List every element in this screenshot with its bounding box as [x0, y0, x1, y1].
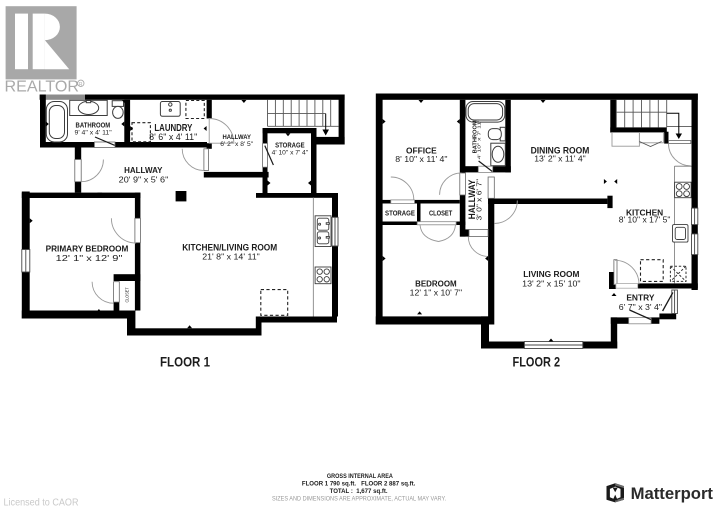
svg-text:PRIMARY BEDROOM: PRIMARY BEDROOM: [46, 244, 129, 254]
svg-text:8' 10" x 11' 4": 8' 10" x 11' 4": [395, 155, 447, 164]
svg-text:LIVING ROOM: LIVING ROOM: [523, 269, 579, 279]
svg-text:6' 2" x 8' 5": 6' 2" x 8' 5": [220, 141, 253, 148]
svg-text:FLOOR 1: FLOOR 1: [160, 355, 210, 370]
svg-text:21' 8" x 14' 11": 21' 8" x 14' 11": [202, 253, 260, 262]
svg-text:ENTRY: ENTRY: [626, 294, 655, 303]
svg-text:6' 7" x 3' 4": 6' 7" x 3' 4": [619, 303, 663, 312]
svg-text:R: R: [79, 82, 83, 88]
svg-text:4' 10" x 7' 4": 4' 10" x 7' 4": [272, 149, 309, 156]
svg-text:HALLWAY: HALLWAY: [223, 134, 252, 141]
svg-text:20' 9" x 5' 6": 20' 9" x 5' 6": [119, 175, 169, 184]
svg-text:12' 1" x 10' 7": 12' 1" x 10' 7": [410, 288, 463, 297]
svg-text:13' 2" x 11' 4": 13' 2" x 11' 4": [534, 155, 586, 164]
svg-text:13' 2" x 15' 10": 13' 2" x 15' 10": [522, 280, 580, 289]
svg-text:REALTOR: REALTOR: [5, 79, 80, 96]
svg-text:TOTAL : 1,677 sq.ft.: TOTAL : 1,677 sq.ft.: [330, 488, 388, 495]
svg-text:HALLWAY: HALLWAY: [124, 166, 163, 175]
svg-text:3' 0" x 6' 7": 3' 0" x 6' 7": [477, 178, 484, 220]
svg-text:HALLWAY: HALLWAY: [467, 180, 477, 220]
svg-text:12' 1" x 12' 9": 12' 1" x 12' 9": [56, 253, 123, 263]
svg-text:Matterport: Matterport: [631, 484, 714, 503]
svg-text:GROSS INTERNAL AREA: GROSS INTERNAL AREA: [327, 473, 393, 480]
svg-text:CLOSET: CLOSET: [125, 287, 131, 302]
svg-text:CLOSET: CLOSET: [429, 210, 453, 217]
svg-text:8' 6" x 4' 11": 8' 6" x 4' 11": [149, 132, 197, 142]
svg-text:FLOOR 1 790 sq.ft. FLOOR 2 8: FLOOR 1 790 sq.ft. FLOOR 2 887 sq.ft.: [302, 480, 416, 487]
svg-text:STORAGE: STORAGE: [385, 210, 415, 217]
svg-text:KITCHEN/LIVING ROOM: KITCHEN/LIVING ROOM: [182, 243, 277, 253]
svg-text:OFFICE: OFFICE: [406, 146, 437, 156]
svg-text:BEDROOM: BEDROOM: [415, 278, 457, 288]
svg-text:FLOOR 2: FLOOR 2: [513, 355, 561, 370]
svg-text:Licensed to CAOR: Licensed to CAOR: [4, 498, 79, 508]
svg-text:SIZES AND DIMENSIONS ARE APPRO: SIZES AND DIMENSIONS ARE APPROXIMATE, AC…: [272, 496, 446, 503]
svg-text:8' 10" x 17' 5": 8' 10" x 17' 5": [619, 216, 671, 225]
svg-text:9' 4" x 4' 11": 9' 4" x 4' 11": [75, 130, 113, 137]
svg-text:4' 10" x 7' 11": 4' 10" x 7' 11": [477, 119, 483, 159]
